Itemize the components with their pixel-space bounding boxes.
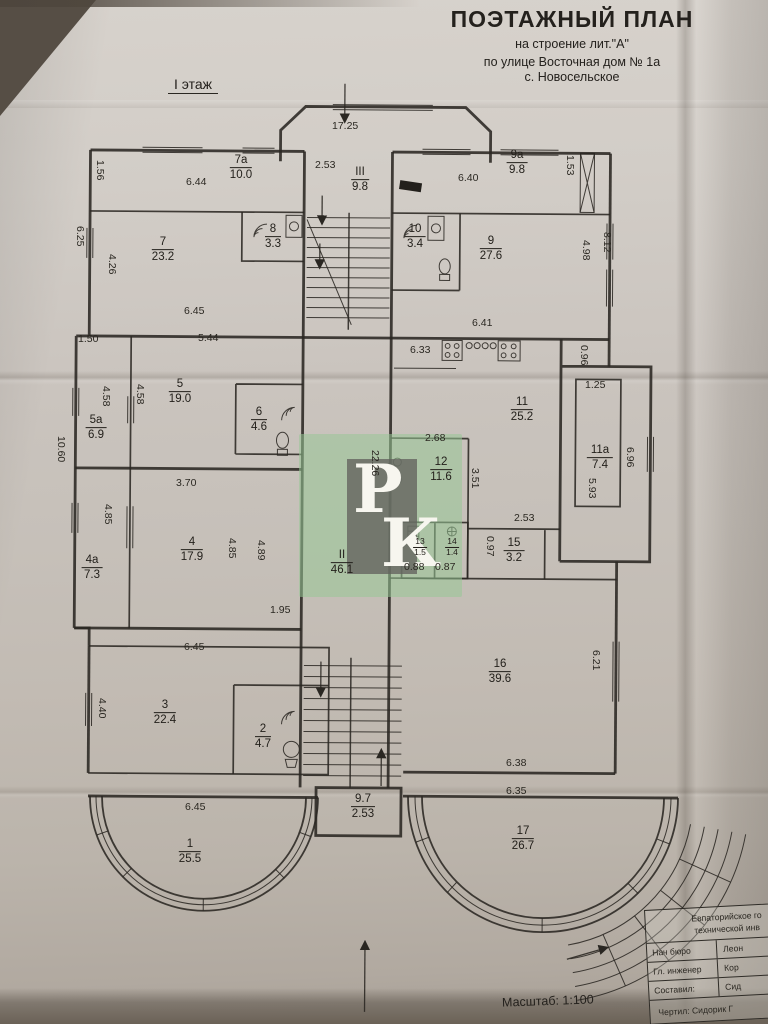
room-area: 10.0 xyxy=(230,169,252,182)
table-cell-value: Сид xyxy=(719,974,768,996)
dimension-label: 6.45 xyxy=(184,305,204,317)
dimension-label: 4.89 xyxy=(255,540,267,560)
room-label-1: 125.5 xyxy=(179,838,201,866)
room-number: 4 xyxy=(181,536,203,550)
room-area: 46.1 xyxy=(331,564,353,577)
room-area: 4.6 xyxy=(251,421,267,434)
room-label-stair-III: III9.8 xyxy=(351,166,369,194)
room-area: 2.53 xyxy=(351,808,375,821)
room-label-8: 83.3 xyxy=(265,223,281,251)
room-area: 23.2 xyxy=(152,251,174,264)
room-label-4: 417.9 xyxy=(181,536,203,564)
room-label-3: 322.4 xyxy=(154,699,176,727)
dimension-label: 0.96 xyxy=(578,345,590,365)
room-number: 10 xyxy=(405,223,426,237)
dimension-label: 0.87 xyxy=(435,561,455,573)
dimension-label: 6.25 xyxy=(74,226,86,246)
room-area: 11.6 xyxy=(430,471,452,484)
filled-door-mark xyxy=(399,180,422,192)
room-area: 4.7 xyxy=(255,738,271,751)
room-number: 7а xyxy=(230,154,252,168)
table-cell-label: Составил: xyxy=(649,978,720,1000)
dimension-label: 6.45 xyxy=(185,801,205,813)
dimension-label: 6.45 xyxy=(184,641,204,653)
room-number: 3 xyxy=(154,699,176,713)
room-area: 3.2 xyxy=(504,552,525,565)
room-number: 4а xyxy=(82,554,103,568)
window-bands xyxy=(70,103,655,730)
room-number: 11а xyxy=(587,444,613,458)
dimension-label: 1.53 xyxy=(564,155,576,175)
dimension-label: 3.70 xyxy=(176,477,196,489)
room-area: 27.6 xyxy=(480,250,502,263)
table-cell-label: Нач бюро xyxy=(647,940,718,962)
dimension-label: 17.25 xyxy=(332,120,358,132)
dimension-label: 0.88 xyxy=(404,561,424,573)
veranda-left xyxy=(89,796,318,912)
room-number: 7 xyxy=(152,236,174,250)
room-label-5a: 5а6.9 xyxy=(86,414,107,442)
room-number: III xyxy=(351,166,369,180)
room-area: 7.4 xyxy=(587,459,613,472)
room-label-4a: 4а7.3 xyxy=(82,554,103,582)
room-number: 5а xyxy=(86,414,107,428)
room-area: 9.8 xyxy=(507,164,528,177)
room-label-9a: 9а9.8 xyxy=(507,149,528,177)
dimension-label: 4.26 xyxy=(106,254,118,274)
dimension-label: 6.96 xyxy=(624,447,636,467)
room-label-11: 1125.2 xyxy=(511,396,533,424)
dimension-label: 5.44 xyxy=(198,332,218,344)
room-label-7: 723.2 xyxy=(152,236,174,264)
room-number: 9 xyxy=(480,235,502,249)
room-area: 39.6 xyxy=(489,673,511,686)
room-label-12: 1211.6 xyxy=(430,456,452,484)
dimension-label: 6.33 xyxy=(410,344,430,356)
room-number: 5 xyxy=(169,378,191,392)
dimension-label: 4.58 xyxy=(100,386,112,406)
room-label-5: 519.0 xyxy=(169,378,191,406)
room-label-6: 64.6 xyxy=(251,406,267,434)
room-number: 9.7 xyxy=(351,793,375,807)
dimension-label: 6.41 xyxy=(472,317,492,329)
room-area: 1.5 xyxy=(413,548,427,558)
dimension-label: 6.38 xyxy=(506,757,526,769)
room-number: 6 xyxy=(251,406,267,420)
room-label-13: 131.5 xyxy=(413,537,427,557)
room-area: 19.0 xyxy=(169,393,191,406)
dimension-label: 6.40 xyxy=(458,172,478,184)
dimension-label: 5.93 xyxy=(586,478,598,498)
room-number: 8 xyxy=(265,223,281,237)
dimension-label: 2.53 xyxy=(315,159,335,171)
room-number: 14 xyxy=(445,537,459,548)
room-label-17: 1726.7 xyxy=(512,825,534,853)
room-number: 12 xyxy=(430,456,452,470)
room-number: II xyxy=(331,549,353,563)
dimension-label: 1.50 xyxy=(78,333,98,345)
dimension-label: 8.12 xyxy=(601,232,613,252)
room-label-16: 1639.6 xyxy=(489,658,511,686)
room-area: 17.9 xyxy=(181,551,203,564)
dimension-label: 22.26 xyxy=(369,450,381,476)
room-area: 1.4 xyxy=(445,548,459,558)
table-cell-label: Гл. инженер xyxy=(648,959,719,981)
room-area: 7.3 xyxy=(82,569,103,582)
dimension-label: 1.56 xyxy=(94,160,106,180)
room-area: 25.2 xyxy=(511,411,533,424)
dimension-label: 4.40 xyxy=(96,698,108,718)
room-area: 22.4 xyxy=(154,714,176,727)
dimension-label: 2.53 xyxy=(514,512,534,524)
dimension-label: 1.95 xyxy=(270,604,290,616)
room-number: 17 xyxy=(512,825,534,839)
room-number: 9а xyxy=(507,149,528,163)
dimension-label: 3.51 xyxy=(469,468,481,488)
room-label-14: 141.4 xyxy=(445,537,459,557)
dimension-label: 0.97 xyxy=(484,536,496,556)
dimension-label: 6.44 xyxy=(186,176,206,188)
room-area: 25.5 xyxy=(179,853,201,866)
staircase-top xyxy=(306,195,390,330)
room-label-7a: 7а10.0 xyxy=(230,154,252,182)
room-label-11a: 11а7.4 xyxy=(587,444,613,472)
room-label-hall-II: II46.1 xyxy=(331,549,353,577)
room-area: 3.3 xyxy=(265,238,281,251)
room-number: 16 xyxy=(489,658,511,672)
room-area: 6.9 xyxy=(86,429,107,442)
room-label-15: 153.2 xyxy=(504,537,525,565)
room-number: 2 xyxy=(255,723,271,737)
dimension-label: 4.58 xyxy=(134,384,146,404)
dimension-label: 6.21 xyxy=(590,650,602,670)
table-cell-value: Леон xyxy=(717,936,768,958)
room-label-9: 927.6 xyxy=(480,235,502,263)
table-cell-value: Кор xyxy=(718,955,768,977)
room-label-2: 24.7 xyxy=(255,723,271,751)
room-label-10: 103.4 xyxy=(405,223,426,251)
title-block-org2: технической инв xyxy=(694,922,760,935)
room-number: 11 xyxy=(511,396,533,410)
dimension-label: 4.98 xyxy=(580,240,592,260)
room-number: 1 xyxy=(179,838,201,852)
room-number: 13 xyxy=(413,537,427,548)
dimension-label: 6.35 xyxy=(506,785,526,797)
photo-of-floor-plan: ПОЭТАЖНЫЙ ПЛАН на строение лит."А" по ул… xyxy=(0,0,768,1024)
room-area: 26.7 xyxy=(512,840,534,853)
room-number: 15 xyxy=(504,537,525,551)
dimension-label: 4.85 xyxy=(102,504,114,524)
room-area: 9.8 xyxy=(351,181,369,194)
room-label-lobby: 9.72.53 xyxy=(351,793,375,821)
dimension-label: 10.60 xyxy=(55,436,67,462)
dimension-label: 2.68 xyxy=(425,432,445,444)
dimension-label: 4.85 xyxy=(226,538,238,558)
room-area: 3.4 xyxy=(405,238,426,251)
title-block-table: Евпаторийское го технической инв Нач бюр… xyxy=(644,902,768,1024)
dimension-label: 1.25 xyxy=(585,379,605,391)
